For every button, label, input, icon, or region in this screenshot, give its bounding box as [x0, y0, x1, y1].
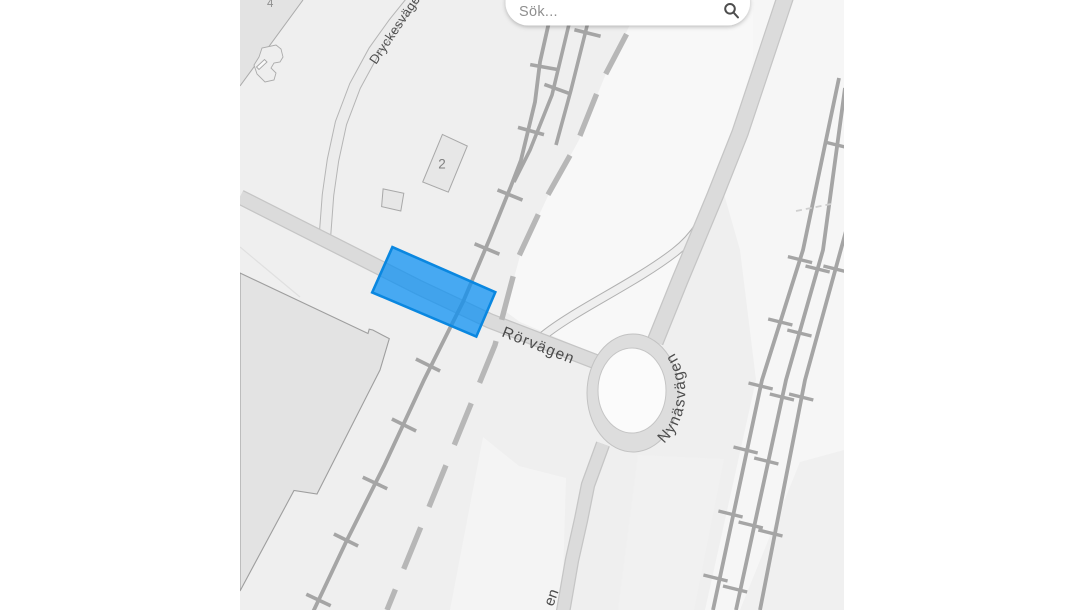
svg-text:2: 2 — [438, 157, 446, 172]
svg-text:4: 4 — [267, 0, 274, 10]
svg-text:Sök...: Sök... — [519, 4, 558, 20]
